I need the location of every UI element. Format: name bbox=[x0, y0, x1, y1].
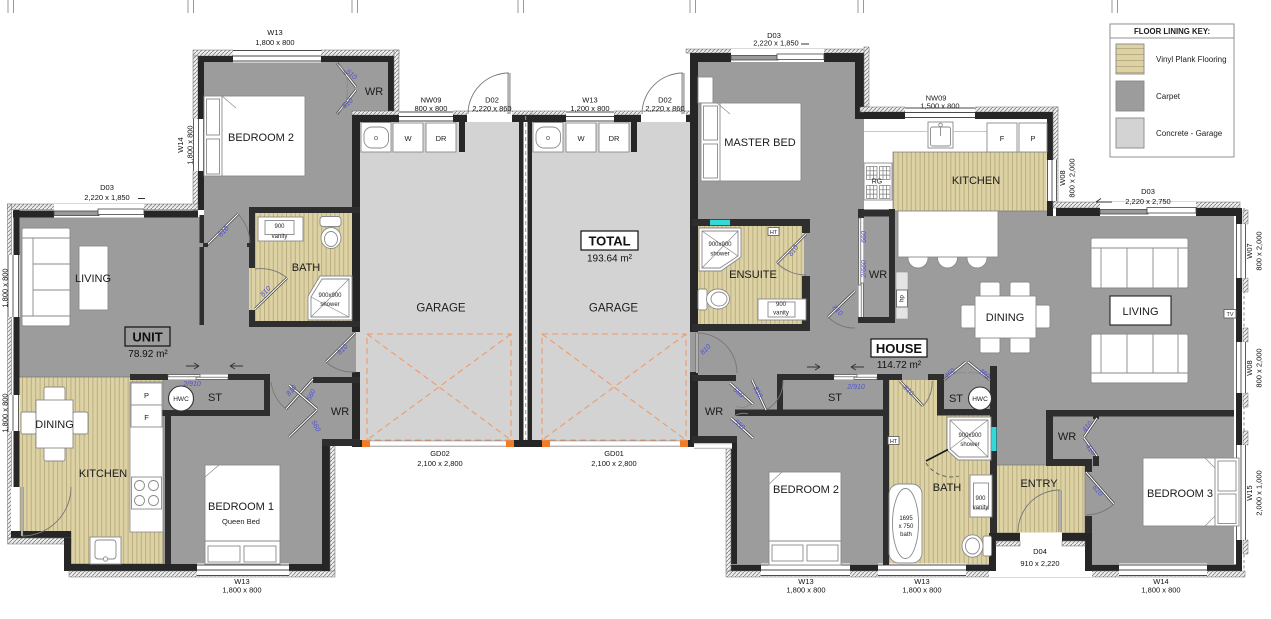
svg-text:W15: W15 bbox=[1245, 485, 1254, 500]
svg-text:Queen Bed: Queen Bed bbox=[222, 517, 260, 526]
svg-text:FLOOR LINING KEY:: FLOOR LINING KEY: bbox=[1134, 27, 1210, 36]
svg-text:KITCHEN: KITCHEN bbox=[79, 468, 127, 480]
svg-text:900: 900 bbox=[274, 224, 285, 230]
svg-text:F: F bbox=[1000, 134, 1005, 143]
svg-text:MASTER BED: MASTER BED bbox=[724, 137, 796, 149]
svg-text:Vinyl Plank Flooring: Vinyl Plank Flooring bbox=[1156, 55, 1227, 64]
svg-text:WR: WR bbox=[365, 86, 383, 98]
svg-text:DR: DR bbox=[436, 134, 447, 143]
svg-text:800 x 2,000: 800 x 2,000 bbox=[1255, 348, 1264, 387]
svg-text:Carpet: Carpet bbox=[1156, 92, 1181, 101]
svg-text:2/910: 2/910 bbox=[182, 381, 201, 388]
svg-text:1695: 1695 bbox=[899, 516, 913, 522]
svg-text:F: F bbox=[144, 413, 149, 422]
svg-text:HWC: HWC bbox=[972, 396, 988, 403]
svg-text:TV: TV bbox=[1226, 312, 1233, 318]
svg-text:HT: HT bbox=[890, 439, 898, 445]
svg-text:910 x 2,220: 910 x 2,220 bbox=[1020, 559, 1059, 568]
svg-text:shower: shower bbox=[710, 252, 729, 258]
svg-text:900: 900 bbox=[975, 496, 986, 502]
svg-text:BATH: BATH bbox=[933, 482, 962, 494]
svg-text:900: 900 bbox=[776, 302, 787, 308]
svg-text:1,800 x 800: 1,800 x 800 bbox=[1141, 586, 1180, 595]
svg-text:W08: W08 bbox=[1058, 170, 1067, 185]
svg-text:GARAGE: GARAGE bbox=[416, 303, 466, 315]
svg-text:vanity: vanity bbox=[272, 234, 288, 240]
svg-text:2,100 x 2,800: 2,100 x 2,800 bbox=[591, 459, 636, 468]
svg-text:2,000 x 1,000: 2,000 x 1,000 bbox=[1255, 470, 1264, 515]
svg-text:TOTAL: TOTAL bbox=[588, 234, 630, 249]
svg-text:2,100 x 2,800: 2,100 x 2,800 bbox=[417, 459, 462, 468]
svg-text:1,200 x 800: 1,200 x 800 bbox=[570, 104, 609, 113]
svg-text:2/660: 2/660 bbox=[861, 260, 868, 279]
svg-text:ST: ST bbox=[949, 393, 963, 405]
svg-text:2/910: 2/910 bbox=[846, 384, 865, 391]
svg-text:D03: D03 bbox=[100, 183, 114, 192]
svg-text:1,800 x 800: 1,800 x 800 bbox=[186, 125, 195, 164]
svg-text:800 x 2,000: 800 x 2,000 bbox=[1255, 231, 1264, 270]
svg-text:1,800 x 800: 1,800 x 800 bbox=[1, 268, 10, 307]
svg-text:WR: WR bbox=[331, 406, 349, 418]
svg-text:HT: HT bbox=[770, 230, 778, 236]
svg-text:P: P bbox=[1030, 134, 1035, 143]
svg-text:vanity: vanity bbox=[773, 311, 789, 317]
svg-text:ST: ST bbox=[208, 392, 222, 404]
svg-text:W: W bbox=[577, 134, 585, 143]
svg-text:BEDROOM 2: BEDROOM 2 bbox=[228, 132, 294, 144]
svg-text:hp: hp bbox=[900, 295, 906, 302]
svg-text:W: W bbox=[404, 134, 412, 143]
svg-text:BATH: BATH bbox=[292, 262, 321, 274]
svg-text:800 x 800: 800 x 800 bbox=[415, 104, 448, 113]
svg-text:1,800 x 800: 1,800 x 800 bbox=[222, 586, 261, 595]
svg-text:shower: shower bbox=[320, 302, 339, 308]
svg-text:shower: shower bbox=[960, 442, 979, 448]
svg-text:900x900: 900x900 bbox=[318, 293, 342, 299]
svg-text:UNIT: UNIT bbox=[132, 330, 162, 345]
svg-text:vanity: vanity bbox=[973, 505, 989, 511]
svg-text:HWC: HWC bbox=[173, 396, 189, 403]
svg-text:193.64 m²: 193.64 m² bbox=[587, 254, 633, 265]
svg-text:DINING: DINING bbox=[986, 312, 1025, 324]
svg-text:114.72 m²: 114.72 m² bbox=[877, 360, 922, 371]
svg-text:1,800 x 800: 1,800 x 800 bbox=[1, 393, 10, 432]
svg-text:bath: bath bbox=[900, 532, 912, 538]
svg-text:2,220 x 2,750: 2,220 x 2,750 bbox=[1125, 197, 1170, 206]
svg-text:D03: D03 bbox=[1141, 187, 1155, 196]
svg-text:Concrete - Garage: Concrete - Garage bbox=[1156, 129, 1223, 138]
svg-text:1,800 x 800: 1,800 x 800 bbox=[255, 38, 294, 47]
svg-text:W13: W13 bbox=[267, 28, 282, 37]
svg-text:ENTRY: ENTRY bbox=[1020, 478, 1058, 490]
svg-text:900x900: 900x900 bbox=[708, 242, 732, 248]
svg-text:LIVING: LIVING bbox=[1122, 306, 1158, 318]
svg-text:DR: DR bbox=[609, 134, 620, 143]
svg-text:W07: W07 bbox=[1245, 243, 1254, 258]
svg-text:ST: ST bbox=[828, 392, 842, 404]
svg-text:HOUSE: HOUSE bbox=[876, 341, 923, 356]
svg-text:RG: RG bbox=[872, 179, 883, 186]
svg-text:ENSUITE: ENSUITE bbox=[729, 269, 777, 281]
svg-text:660: 660 bbox=[861, 231, 868, 243]
svg-text:2,220 x 860: 2,220 x 860 bbox=[472, 104, 511, 113]
svg-text:900x900: 900x900 bbox=[958, 433, 982, 439]
svg-text:BEDROOM 3: BEDROOM 3 bbox=[1147, 488, 1213, 500]
svg-text:x 750: x 750 bbox=[899, 524, 914, 530]
svg-text:800 x 2,000: 800 x 2,000 bbox=[1068, 158, 1077, 197]
svg-text:WR: WR bbox=[869, 269, 887, 281]
svg-text:WR: WR bbox=[1058, 431, 1076, 443]
svg-text:2,220 x 1,850: 2,220 x 1,850 bbox=[84, 193, 129, 202]
svg-text:BEDROOM 1: BEDROOM 1 bbox=[208, 501, 274, 513]
svg-text:WR: WR bbox=[705, 406, 723, 418]
svg-text:W14: W14 bbox=[176, 137, 185, 152]
svg-text:P: P bbox=[144, 391, 149, 400]
svg-text:2,220 x 860: 2,220 x 860 bbox=[645, 104, 684, 113]
svg-text:GD01: GD01 bbox=[604, 449, 624, 458]
svg-text:LIVING: LIVING bbox=[75, 273, 111, 285]
svg-text:KITCHEN: KITCHEN bbox=[952, 175, 1000, 187]
svg-text:W08: W08 bbox=[1245, 360, 1254, 375]
svg-text:78.92 m²: 78.92 m² bbox=[128, 349, 168, 360]
svg-text:DINING: DINING bbox=[35, 419, 74, 431]
svg-text:2,220 x 1,850: 2,220 x 1,850 bbox=[753, 39, 798, 48]
svg-text:1,500 x 800: 1,500 x 800 bbox=[920, 102, 959, 111]
svg-text:GD02: GD02 bbox=[430, 449, 450, 458]
svg-text:D04: D04 bbox=[1033, 547, 1047, 556]
svg-text:1,800 x 800: 1,800 x 800 bbox=[902, 586, 941, 595]
svg-text:1,800 x 800: 1,800 x 800 bbox=[786, 586, 825, 595]
svg-text:GARAGE: GARAGE bbox=[589, 303, 639, 315]
svg-text:BEDROOM 2: BEDROOM 2 bbox=[773, 484, 839, 496]
